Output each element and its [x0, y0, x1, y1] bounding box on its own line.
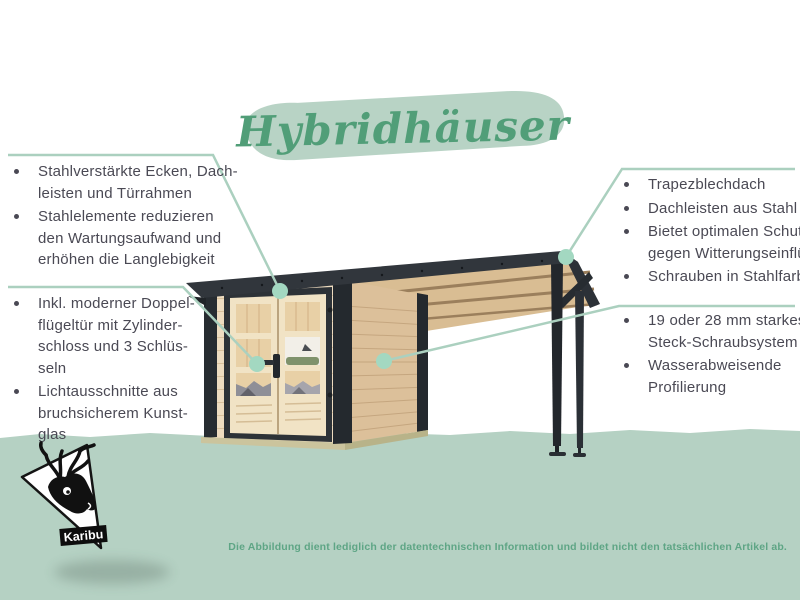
disclaimer-text: Die Abbildung dient lediglich der datent… [228, 541, 787, 553]
karibu-logo: Karibu [0, 0, 800, 600]
hybridhaus-infographic: Hybridhäuser Stahlverstärkte Ecken, Dach… [0, 0, 800, 600]
